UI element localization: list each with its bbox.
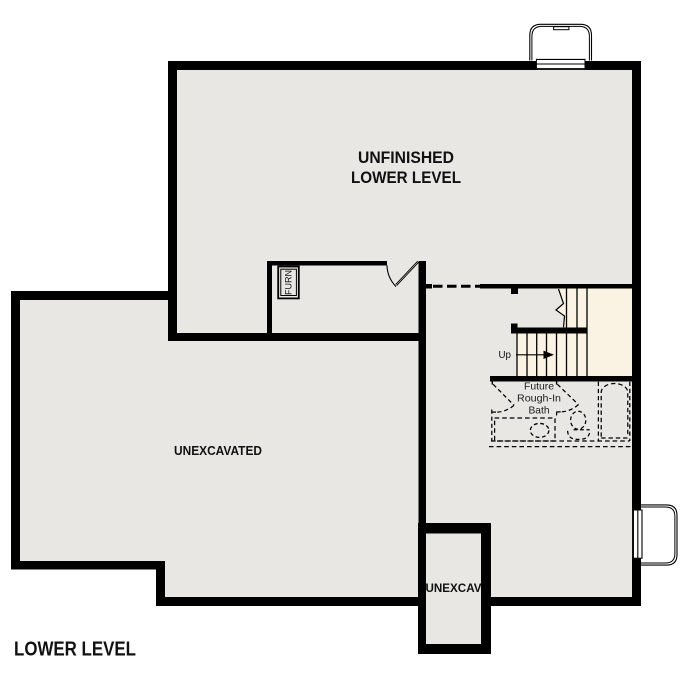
svg-text:LOWER LEVEL: LOWER LEVEL xyxy=(14,638,136,661)
svg-text:UNEXCAVATED: UNEXCAVATED xyxy=(174,443,262,458)
svg-text:LOWER LEVEL: LOWER LEVEL xyxy=(351,169,461,187)
svg-text:Up: Up xyxy=(499,349,512,361)
svg-text:Future: Future xyxy=(524,382,554,393)
svg-text:UNEXCAV: UNEXCAV xyxy=(426,581,483,595)
svg-text:Rough-In: Rough-In xyxy=(517,394,561,405)
svg-text:Bath: Bath xyxy=(529,406,550,417)
svg-text:UNFINISHED: UNFINISHED xyxy=(358,149,454,167)
svg-text:FURN: FURN xyxy=(284,270,294,295)
